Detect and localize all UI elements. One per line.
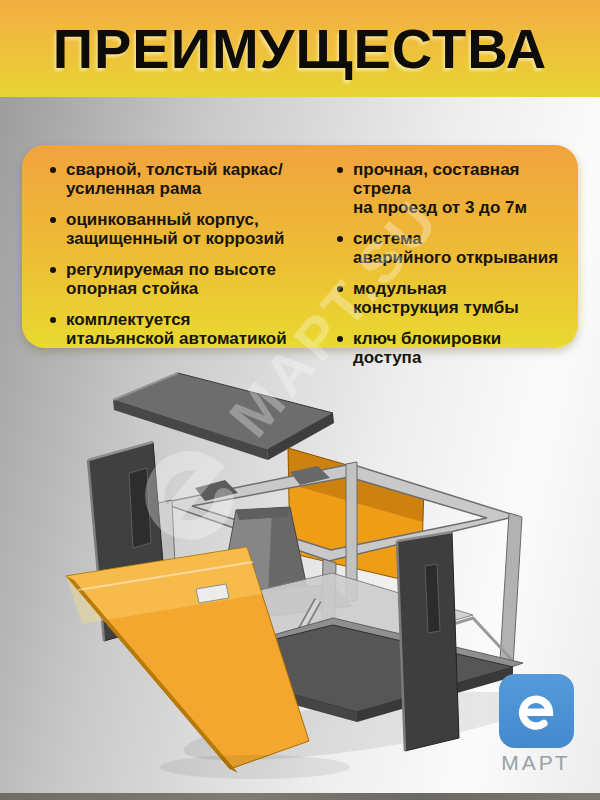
list-item-text: ключ блокировки доступа bbox=[353, 329, 501, 367]
list-item-text: регулируемая по высоте опорная стойка bbox=[66, 260, 276, 298]
bullet-icon bbox=[337, 167, 343, 173]
advantages-card: сварной, толстый каркас/ усиленная рама … bbox=[22, 145, 578, 348]
list-item: ключ блокировки доступа bbox=[337, 329, 564, 367]
bullet-icon bbox=[50, 267, 56, 273]
bullet-icon bbox=[50, 317, 56, 323]
list-item-text: комплектуется итальянской автоматикой bbox=[66, 310, 287, 348]
advantages-list-right: прочная, составная стрела на проезд от 3… bbox=[311, 160, 564, 379]
list-item: оцинкованный корпус, защищенный от корро… bbox=[50, 210, 303, 248]
list-item-text: система аварийного открывания bbox=[353, 229, 558, 267]
list-item-text: прочная, составная стрела на проезд от 3… bbox=[353, 160, 564, 217]
bottom-edge-strip bbox=[0, 793, 600, 800]
side-panel-right bbox=[397, 532, 459, 751]
list-item-text: оцинкованный корпус, защищенный от корро… bbox=[66, 210, 284, 248]
list-item: система аварийного открывания bbox=[337, 229, 564, 267]
list-item: комплектуется итальянской автоматикой bbox=[50, 310, 303, 348]
e-logo-icon bbox=[499, 674, 574, 748]
bullet-icon bbox=[50, 167, 56, 173]
promo-slide: ПРЕИМУЩЕСТВА сварной, толстый каркас/ ус… bbox=[0, 0, 600, 800]
page-title: ПРЕИМУЩЕСТВА bbox=[53, 16, 547, 81]
list-item: прочная, составная стрела на проезд от 3… bbox=[337, 160, 564, 217]
list-item-text: сварной, толстый каркас/ усиленная рама bbox=[66, 160, 283, 198]
bullet-icon bbox=[337, 336, 343, 342]
header-banner: ПРЕИМУЩЕСТВА bbox=[0, 0, 600, 97]
list-item: модульная конструкция тумбы bbox=[337, 279, 564, 317]
list-item-text: модульная конструкция тумбы bbox=[353, 279, 519, 317]
list-item: регулируемая по высоте опорная стойка bbox=[50, 260, 303, 298]
bullet-icon bbox=[337, 236, 343, 242]
emart-logo: МАРТ bbox=[490, 674, 582, 775]
list-item: сварной, толстый каркас/ усиленная рама bbox=[50, 160, 303, 198]
advantages-list-left: сварной, толстый каркас/ усиленная рама … bbox=[50, 160, 303, 379]
logo-brand-text: МАРТ bbox=[490, 751, 582, 775]
bullet-icon bbox=[50, 217, 56, 223]
bullet-icon bbox=[337, 286, 343, 292]
